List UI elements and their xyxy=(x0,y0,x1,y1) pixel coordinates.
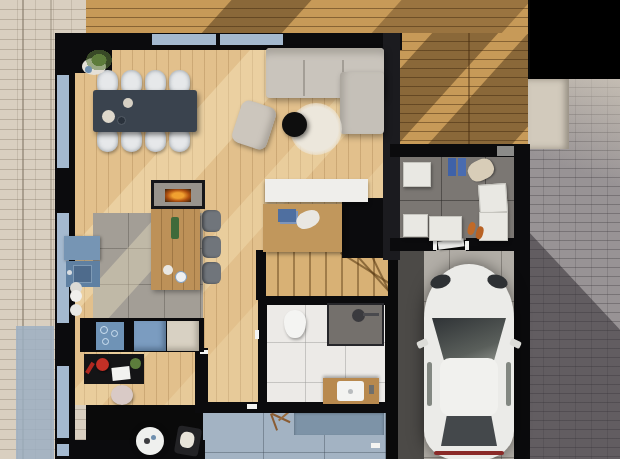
clothes-chair xyxy=(174,425,202,457)
windshield xyxy=(432,318,506,360)
kitchen-sink-unit xyxy=(66,261,100,287)
sofa-chaise xyxy=(340,72,384,134)
sink-basin xyxy=(73,265,92,283)
door-frame-mark xyxy=(433,241,437,250)
bar-stool xyxy=(202,236,221,258)
door-frame-mark xyxy=(255,330,259,339)
bar-stool xyxy=(202,262,221,284)
side-window-left xyxy=(427,362,432,406)
round-stool xyxy=(111,385,133,405)
rear-window xyxy=(441,416,497,446)
bar-island xyxy=(151,209,200,290)
plate xyxy=(102,110,115,123)
paper-sheet xyxy=(111,366,130,381)
bottle xyxy=(171,217,179,239)
burner xyxy=(100,326,108,334)
coffee-table xyxy=(282,112,307,137)
desk-nook xyxy=(263,204,342,252)
cabinet-blue xyxy=(134,321,166,351)
wall-bath-left xyxy=(258,296,267,406)
fireplace xyxy=(151,180,205,209)
door-frame-mark xyxy=(371,443,380,448)
plate xyxy=(123,98,133,108)
cooktop xyxy=(96,322,124,350)
car-roof xyxy=(440,358,498,416)
rug-item xyxy=(151,435,156,440)
blue-ornament xyxy=(85,66,92,73)
entry-hall xyxy=(203,407,386,459)
canopy-strip xyxy=(16,326,54,459)
cup xyxy=(163,265,173,275)
dish-stack xyxy=(70,290,82,302)
wall-stair-side xyxy=(256,250,266,300)
dining-table xyxy=(93,90,197,132)
office-rug xyxy=(136,427,164,455)
bowl xyxy=(117,116,126,125)
wall-desk-nook xyxy=(342,198,383,258)
storage-box xyxy=(479,212,508,241)
shower xyxy=(327,303,384,346)
storage-box xyxy=(403,162,431,187)
faucet xyxy=(67,270,72,275)
detergent-bottles xyxy=(448,158,456,176)
storage-box xyxy=(403,214,428,237)
deck-terrace-top xyxy=(86,0,528,34)
fire-glow xyxy=(165,189,191,202)
deck-board-joint xyxy=(468,33,470,148)
concrete-path xyxy=(528,79,569,149)
clothes xyxy=(179,431,196,449)
taillight-strip xyxy=(434,451,504,455)
wall-hall xyxy=(195,348,208,406)
doormat xyxy=(294,411,384,435)
rug-item xyxy=(144,438,150,444)
white-bag xyxy=(294,207,322,231)
burner xyxy=(102,338,109,345)
desk-plant xyxy=(130,358,141,369)
bar-stool xyxy=(202,210,221,232)
vanity xyxy=(323,378,379,404)
wall-garage-right xyxy=(514,144,530,459)
cabinet-beige xyxy=(167,321,199,351)
white-console xyxy=(265,179,368,202)
floorplan-render xyxy=(0,0,620,459)
door-frame-mark xyxy=(465,241,469,250)
toilet xyxy=(284,310,306,338)
door-frame-mark xyxy=(247,404,257,409)
drain xyxy=(348,389,353,394)
blue-books xyxy=(278,209,296,222)
door-mullion xyxy=(216,34,220,45)
staircase xyxy=(263,252,388,302)
storage-box xyxy=(478,183,508,214)
garage-floor-shadow xyxy=(398,250,424,459)
white-car xyxy=(424,264,514,459)
kitchen-counter-blue xyxy=(64,236,100,260)
window-left-1 xyxy=(57,75,69,168)
cushion-seam xyxy=(303,60,305,96)
shower-arm xyxy=(363,313,379,316)
plate xyxy=(175,271,187,283)
storage-box xyxy=(429,216,462,241)
crop-mask xyxy=(530,0,620,79)
window-left-3 xyxy=(57,366,69,438)
side-window-right xyxy=(506,362,511,406)
deck-terrace-right xyxy=(398,33,528,148)
window-bottom-left xyxy=(57,444,69,456)
red-chair xyxy=(96,358,109,371)
burner xyxy=(111,330,118,337)
soap-dispenser xyxy=(369,385,374,394)
